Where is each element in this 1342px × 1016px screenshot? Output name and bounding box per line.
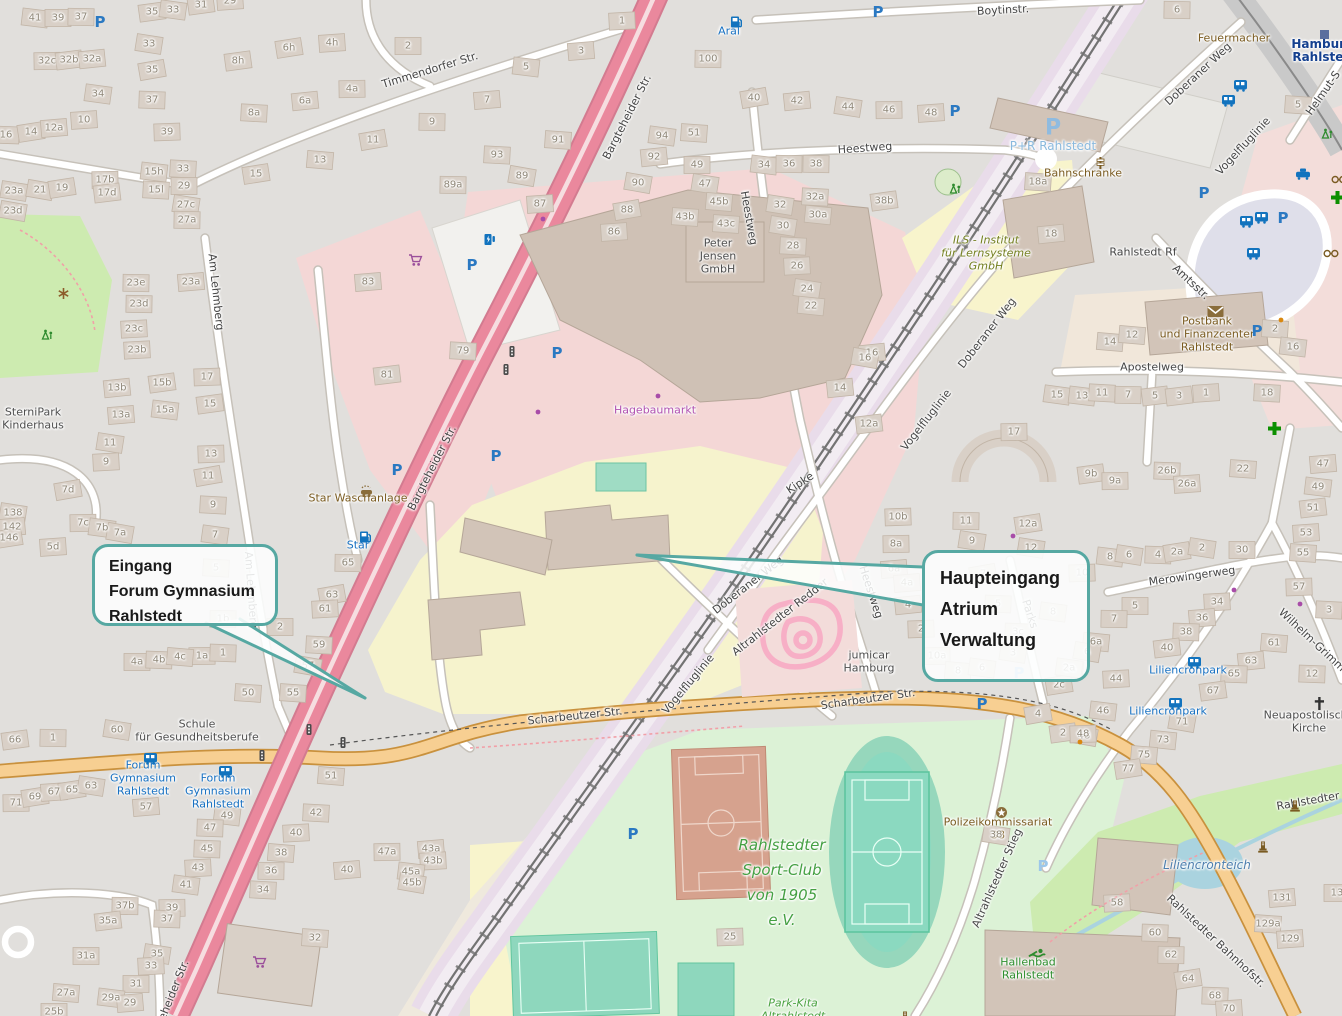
building [94,911,122,931]
building [893,573,920,592]
building [1279,337,1307,357]
building [107,405,134,424]
building [783,91,811,111]
building [172,875,200,895]
building [93,183,121,203]
building [140,162,168,182]
building [1070,725,1097,743]
building [1173,475,1200,494]
building [373,365,401,385]
building [318,34,345,53]
building [1174,969,1202,990]
building [1289,544,1316,563]
building [154,123,181,141]
building [148,373,176,393]
building [258,862,284,879]
building [103,720,131,741]
building [1024,173,1051,192]
building [0,181,28,202]
building [197,819,224,837]
building [953,512,979,529]
building [958,531,986,552]
building [200,496,227,514]
building [185,859,212,877]
jumicar-track [735,580,862,697]
building [1268,888,1295,907]
building [769,216,797,237]
building [1037,224,1065,244]
building [804,205,832,225]
building [1089,384,1116,402]
building [234,684,261,703]
building [123,274,149,291]
building [132,797,159,816]
building [39,538,66,557]
building [116,993,143,1012]
building [834,97,862,118]
building [1077,464,1105,484]
building [283,824,310,842]
building [695,50,721,67]
building [1103,670,1130,688]
building [766,195,794,216]
building [291,91,319,111]
building [124,341,151,359]
building [1001,423,1027,440]
building [1299,665,1326,683]
building [1118,325,1145,344]
building [135,34,163,55]
building [224,51,252,71]
building [1254,915,1281,934]
building [1014,514,1042,535]
building [776,155,802,172]
building [1149,730,1177,750]
building [982,825,1010,846]
building [1261,320,1288,339]
building [797,296,825,316]
building [303,804,330,822]
building [1286,578,1313,596]
callout-text-line: Verwaltung [940,625,1072,656]
building [1089,701,1117,721]
building [123,976,149,993]
building [855,414,883,434]
building [126,295,152,312]
building [45,10,71,27]
building [717,928,744,946]
building [84,84,112,104]
building [1158,946,1184,963]
building [339,80,365,97]
building [301,929,328,948]
building [484,146,511,164]
building [894,595,922,615]
building [159,0,187,20]
building [680,124,707,143]
building [333,860,360,879]
building [600,223,627,242]
callout-text-line: Eingang [109,555,261,580]
building [312,600,339,618]
building [544,131,571,150]
building [684,157,710,174]
building [143,181,170,199]
building [1,730,29,750]
callout-text-line: Forum Gymnasium [109,580,261,605]
building [567,41,594,60]
building [250,881,277,899]
building [198,445,225,463]
building [1276,930,1303,949]
building [335,554,361,571]
building [279,684,306,703]
building [96,433,124,454]
building [194,368,221,386]
building [1229,460,1256,479]
building [68,8,94,25]
building [793,279,821,300]
building [177,272,204,291]
building [171,178,197,195]
building [194,840,221,858]
building [93,453,120,471]
building [802,188,829,206]
map-base-layer [0,0,1342,1016]
building [784,257,811,275]
building [1164,1,1190,18]
building [0,528,23,549]
building [78,49,106,69]
building [1204,593,1231,611]
building [201,525,229,545]
building [712,215,739,234]
building [306,150,333,169]
building [1254,384,1281,402]
building [1199,681,1227,701]
building [883,535,909,552]
building [1101,610,1127,627]
building [1316,601,1342,619]
building [40,729,66,746]
building [1115,386,1141,403]
building [306,636,333,654]
building [876,101,902,118]
building [1115,545,1143,566]
building [174,211,200,228]
building [196,394,224,414]
building [1142,924,1169,942]
building [512,57,540,77]
building [671,208,698,227]
building [917,104,944,123]
building [1153,638,1181,658]
building [138,957,165,975]
building [103,378,131,398]
callout-haupteingang-atrium: HaupteingangAtriumVerwaltung [922,550,1090,682]
building [780,237,807,255]
building [139,91,166,109]
building [440,176,466,193]
building [1324,885,1342,902]
building [241,104,268,122]
building [1114,759,1142,780]
building [750,155,778,175]
map-canvas[interactable]: Timmendorfer Str.Bargteheider Str.Bargte… [0,0,1342,1016]
building [640,147,668,167]
building [166,647,193,666]
building [170,160,197,178]
building [1102,472,1128,489]
building [154,910,181,928]
building [1221,665,1248,683]
building [1192,384,1219,403]
building [885,508,912,526]
building [73,948,99,965]
building [1215,1000,1242,1016]
building [1229,542,1255,559]
building [70,111,97,130]
callout-text-line: Atrium [940,594,1072,625]
building [0,126,19,144]
building [210,644,237,662]
callout-eingang-forum-gymnasium: EingangForum GymnasiumRahlstedt [92,544,278,626]
building [870,191,898,211]
building [1163,542,1191,563]
building [275,38,303,59]
building [52,983,79,1002]
building [395,38,421,55]
building [419,113,445,130]
building [151,400,179,420]
building [374,843,400,860]
building [691,174,719,195]
building [1304,477,1332,497]
building [648,126,676,146]
building [216,0,243,10]
building [473,90,500,109]
building [267,843,294,862]
building [1309,454,1336,473]
building [317,766,344,785]
building [803,155,829,172]
building [826,378,854,398]
building [1284,96,1311,115]
building [354,272,381,291]
building [705,192,732,211]
building [1165,386,1193,406]
building [526,195,553,214]
building [1043,385,1071,405]
building [609,12,636,30]
building [1299,498,1327,518]
callout-text-line: Rahlstedt [109,605,261,630]
building [1292,524,1319,543]
building [121,320,148,338]
building [1260,633,1287,652]
building [40,118,67,137]
building [1188,538,1216,559]
building [41,1004,67,1016]
building [77,776,105,797]
building [242,164,270,185]
building [450,342,477,360]
callout-text-line: Haupteingang [940,563,1072,594]
building [48,178,76,199]
